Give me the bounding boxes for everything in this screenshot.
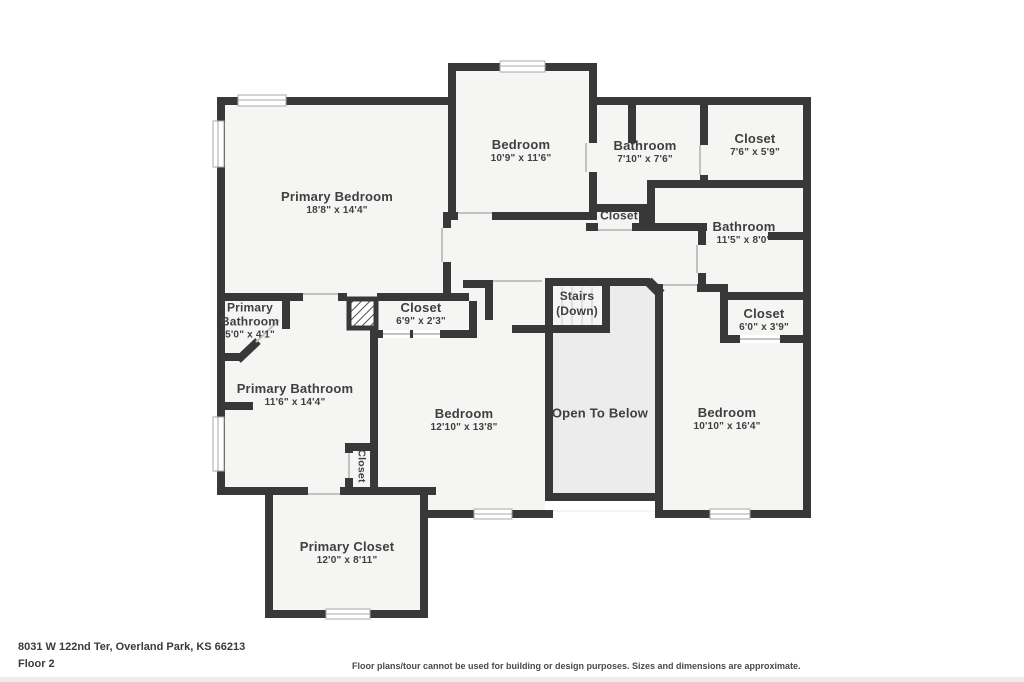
room-label-closet-middle: Closet [600, 209, 638, 224]
room-label-closet-hall: Closet6'9" x 2'3" [396, 300, 446, 328]
room-label-primary-bathroom-small: Primary Bathroom5'0" x 4'1" [200, 301, 300, 342]
room-label-open-to-below: Open To Below [552, 406, 648, 421]
room-label-bathroom-right: Bathroom11'5" x 8'0" [713, 219, 776, 247]
room-label-closet-linen: Closet [354, 449, 369, 482]
footer-disclaimer: Floor plans/tour cannot be used for buil… [352, 661, 801, 671]
footer-floor-label: Floor 2 [18, 658, 55, 670]
room-label-stairs: Stairs(Down) [556, 289, 598, 319]
room-label-bedroom-top: Bedroom10'9" x 11'6" [491, 137, 552, 165]
room-label-closet-bedroom-right: Closet6'0" x 3'9" [739, 306, 789, 334]
floorplan-page: Primary Bedroom18'8" x 14'4" Bedroom10'9… [0, 0, 1024, 682]
footer-address: 8031 W 122nd Ter, Overland Park, KS 6621… [18, 641, 245, 653]
bottom-edge-band [0, 677, 1024, 682]
room-label-primary-bedroom: Primary Bedroom18'8" x 14'4" [281, 189, 393, 217]
hatched-chase-block [349, 299, 376, 328]
room-label-bedroom-right: Bedroom10'10" x 16'4" [693, 405, 760, 433]
room-label-bedroom-center: Bedroom12'10" x 13'8" [430, 406, 497, 434]
room-label-primary-closet: Primary Closet12'0" x 8'11" [300, 539, 395, 567]
room-label-primary-bathroom: Primary Bathroom11'6" x 14'4" [237, 381, 354, 409]
floorplan-graphic [0, 0, 1024, 682]
room-label-closet-top-right: Closet7'6" x 5'9" [730, 131, 780, 159]
room-label-bathroom-top: Bathroom7'10" x 7'6" [614, 138, 677, 166]
